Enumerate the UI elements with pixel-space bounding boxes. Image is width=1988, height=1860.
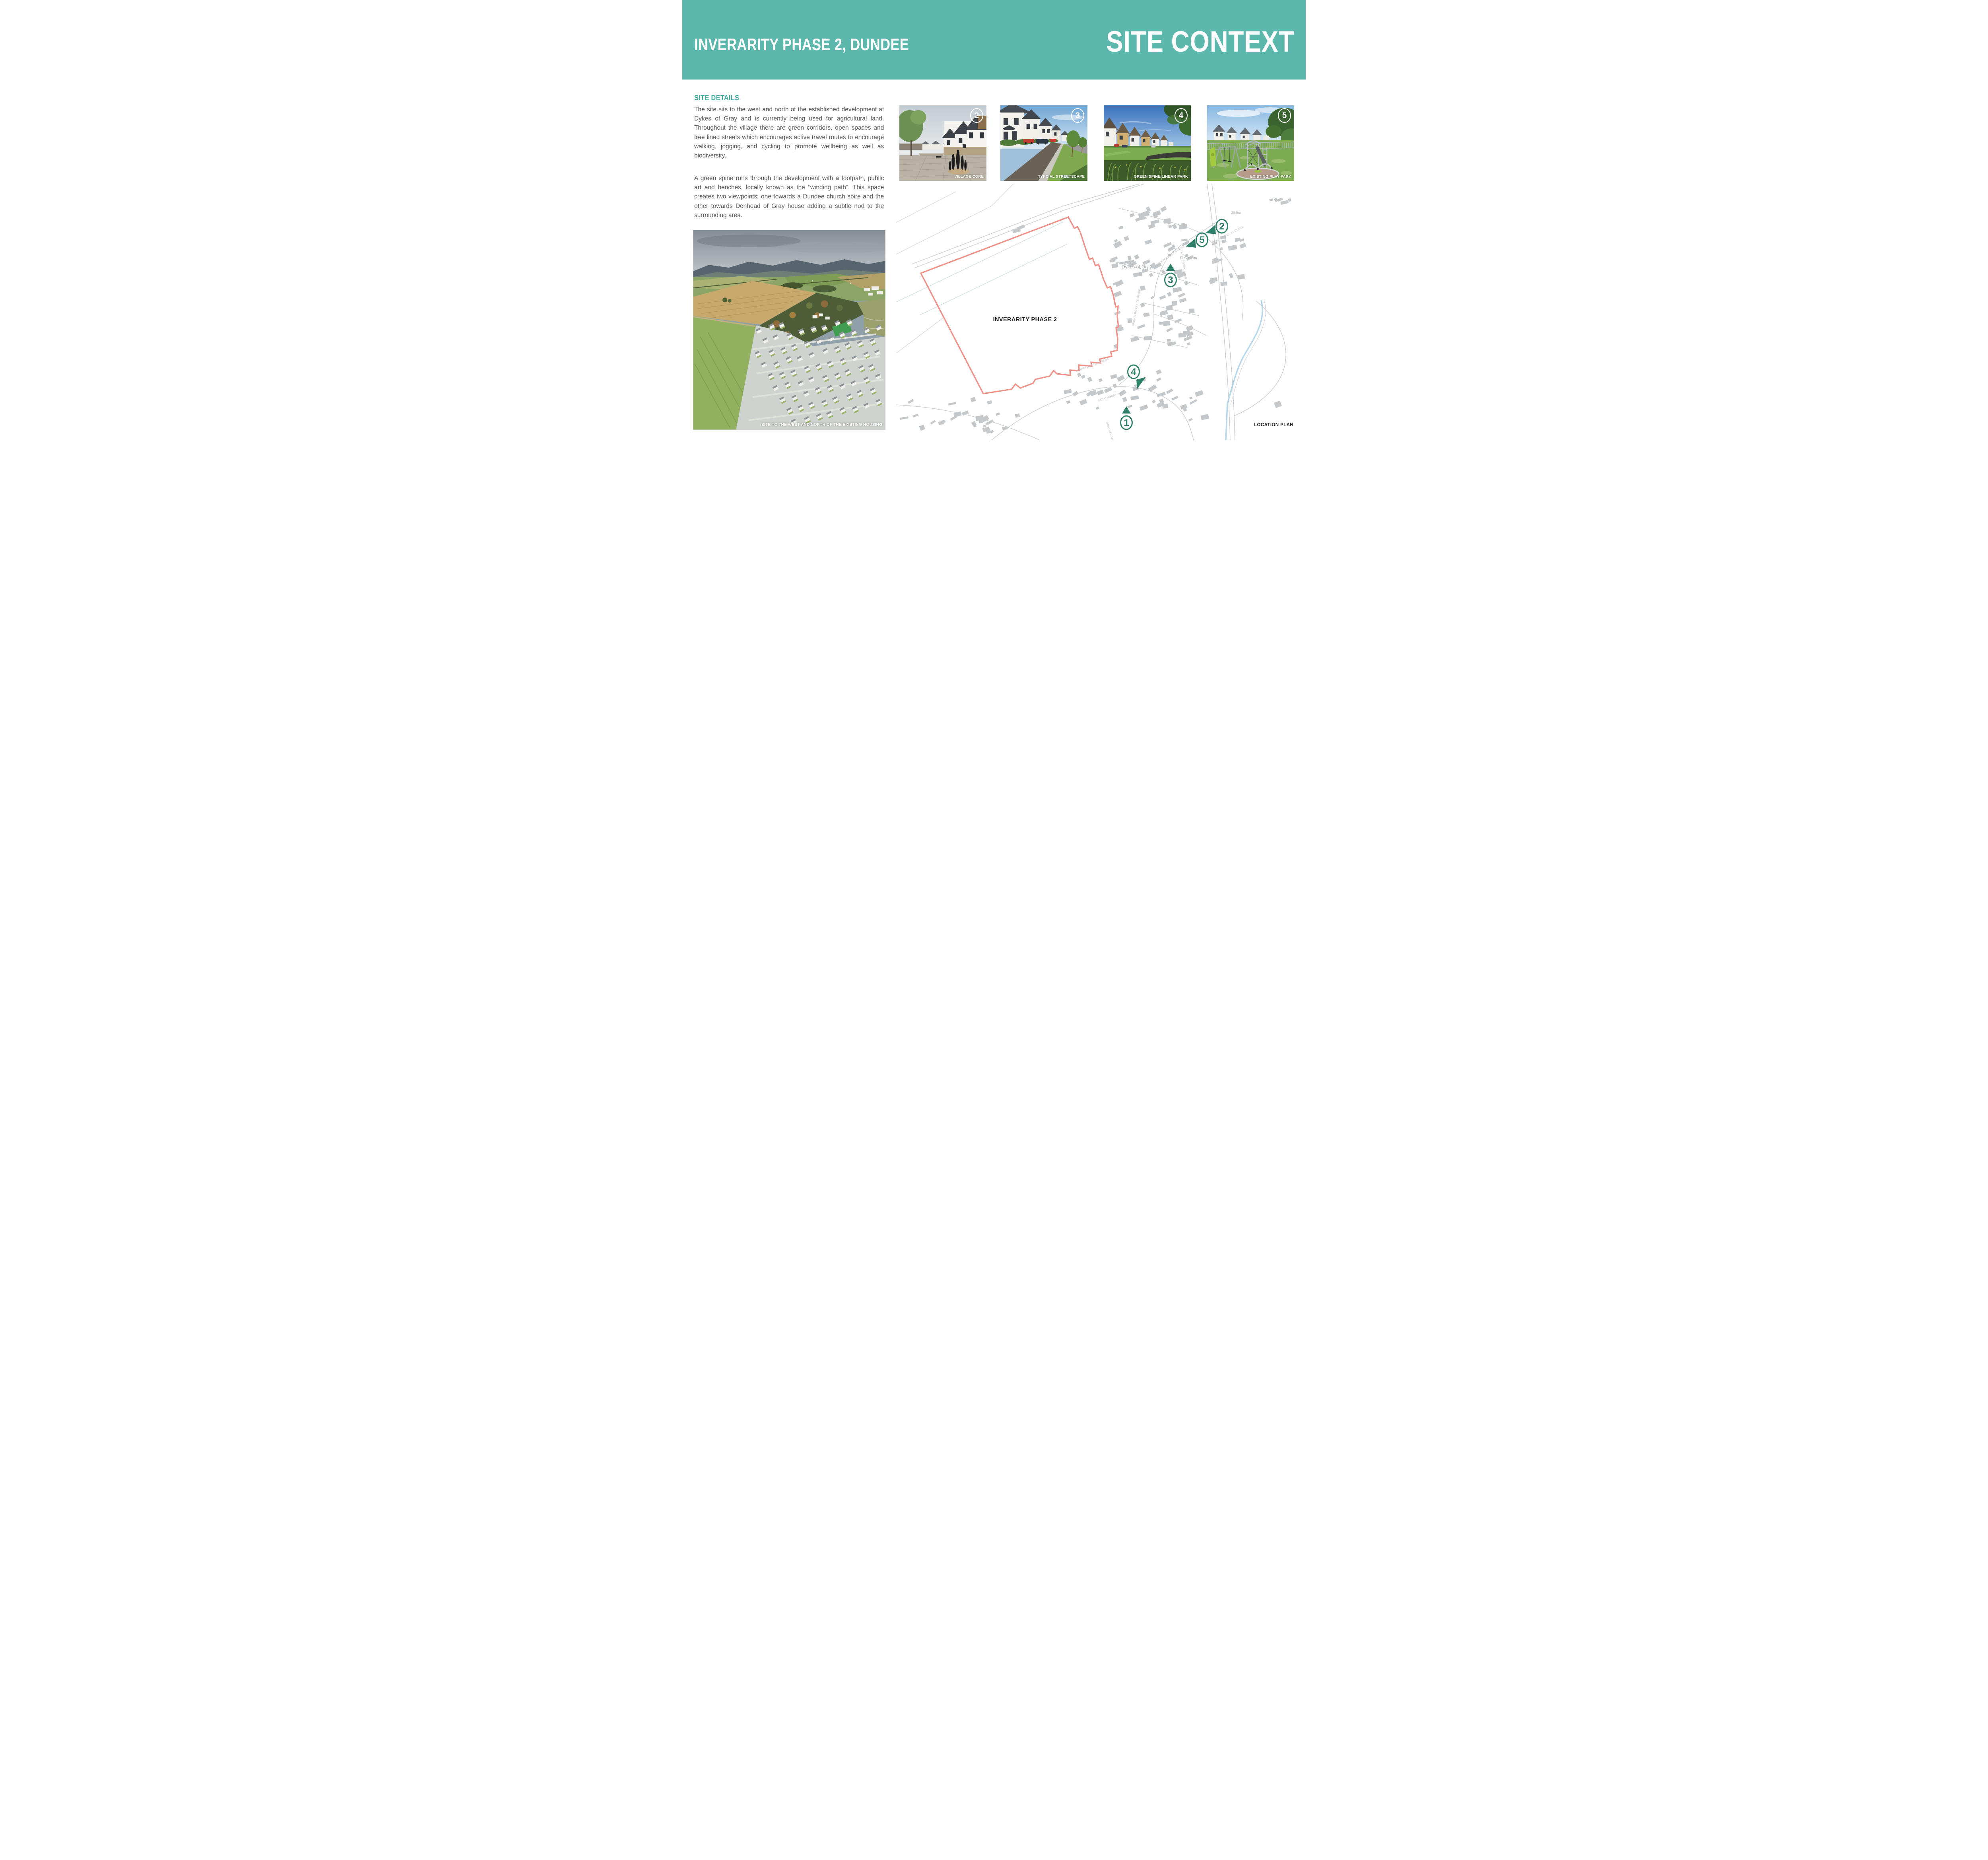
aerial-site-photo: SITE TO THE WEST AND NORTH OF THE EXISTI… <box>693 230 885 430</box>
building-footprint <box>1178 333 1186 338</box>
building-footprint <box>1189 309 1195 313</box>
building-footprint <box>1127 260 1132 264</box>
building-footprint <box>1144 336 1152 341</box>
spot-height-label: 39.0m <box>1231 211 1241 215</box>
photo-number-badge: 4 <box>1175 108 1188 123</box>
photo-number-badge: 5 <box>1278 108 1291 123</box>
viewpoint-number: 4 <box>1131 367 1136 377</box>
photo-play-park: 5 EXISTING PLAY PARK <box>1207 105 1294 181</box>
aerial-house <box>816 338 822 344</box>
plan-label: LOCATION PLAN <box>1254 423 1293 427</box>
building-footprint <box>986 428 991 434</box>
aerial-photo-illustration <box>693 230 885 430</box>
building-footprint <box>1127 318 1132 323</box>
viewpoint-number: 3 <box>1168 275 1173 285</box>
building-footprint <box>1167 339 1171 342</box>
building-footprint <box>1220 282 1227 286</box>
building-footprint <box>1237 274 1245 280</box>
site-details-heading: SITE DETAILS <box>694 94 739 102</box>
site-details-paragraph-2: A green spine runs through the developme… <box>694 174 884 220</box>
photo-caption: VILLAGE CORE <box>954 175 984 179</box>
photo-green-spine: 4 GREEN SPINE/LINEAR PARK <box>1104 105 1191 181</box>
building-footprint <box>1288 198 1291 202</box>
site-details-paragraph-1: The site sits to the west and north of t… <box>694 105 884 160</box>
photo-caption: EXISTING PLAY PARK <box>1250 175 1291 179</box>
photo-number-badge: 3 <box>1071 108 1084 123</box>
area-label: Dykes of Gray <box>1122 264 1152 270</box>
page-title: SITE CONTEXT <box>1106 25 1295 58</box>
viewpoint-number: 2 <box>1219 221 1224 232</box>
site-context-board: INVERARITY PHASE 2, DUNDEE SITE CONTEXT … <box>682 0 1306 440</box>
photo-caption: GREEN SPINE/LINEAR PARK <box>1134 175 1188 179</box>
location-plan-drawing: INVERARITY PHASE 2 Dykes of Gray LOCATIO… <box>896 184 1306 440</box>
project-title: INVERARITY PHASE 2, DUNDEE <box>694 35 909 54</box>
photo-typical-streetscape: 3 TYPCIAL STREETSCAPE <box>1000 105 1087 181</box>
photo-number-badge: 2 <box>970 108 983 123</box>
viewpoint-number: 5 <box>1199 235 1204 245</box>
viewpoint-number: 1 <box>1124 417 1129 428</box>
header-band: INVERARITY PHASE 2, DUNDEE SITE CONTEXT <box>682 0 1306 80</box>
building-footprint <box>1172 301 1177 306</box>
photo-village-core: 2 VILLAGE CORE <box>899 105 986 181</box>
building-footprint <box>1166 305 1173 311</box>
site-label: INVERARITY PHASE 2 <box>993 316 1057 323</box>
aerial-photo-caption: SITE TO THE WEST AND NORTH OF THE EXISTI… <box>761 423 882 427</box>
photo-caption: TYPCIAL STREETSCAPE <box>1038 175 1085 179</box>
location-plan-map: INVERARITY PHASE 2 Dykes of Gray LOCATIO… <box>896 184 1306 440</box>
